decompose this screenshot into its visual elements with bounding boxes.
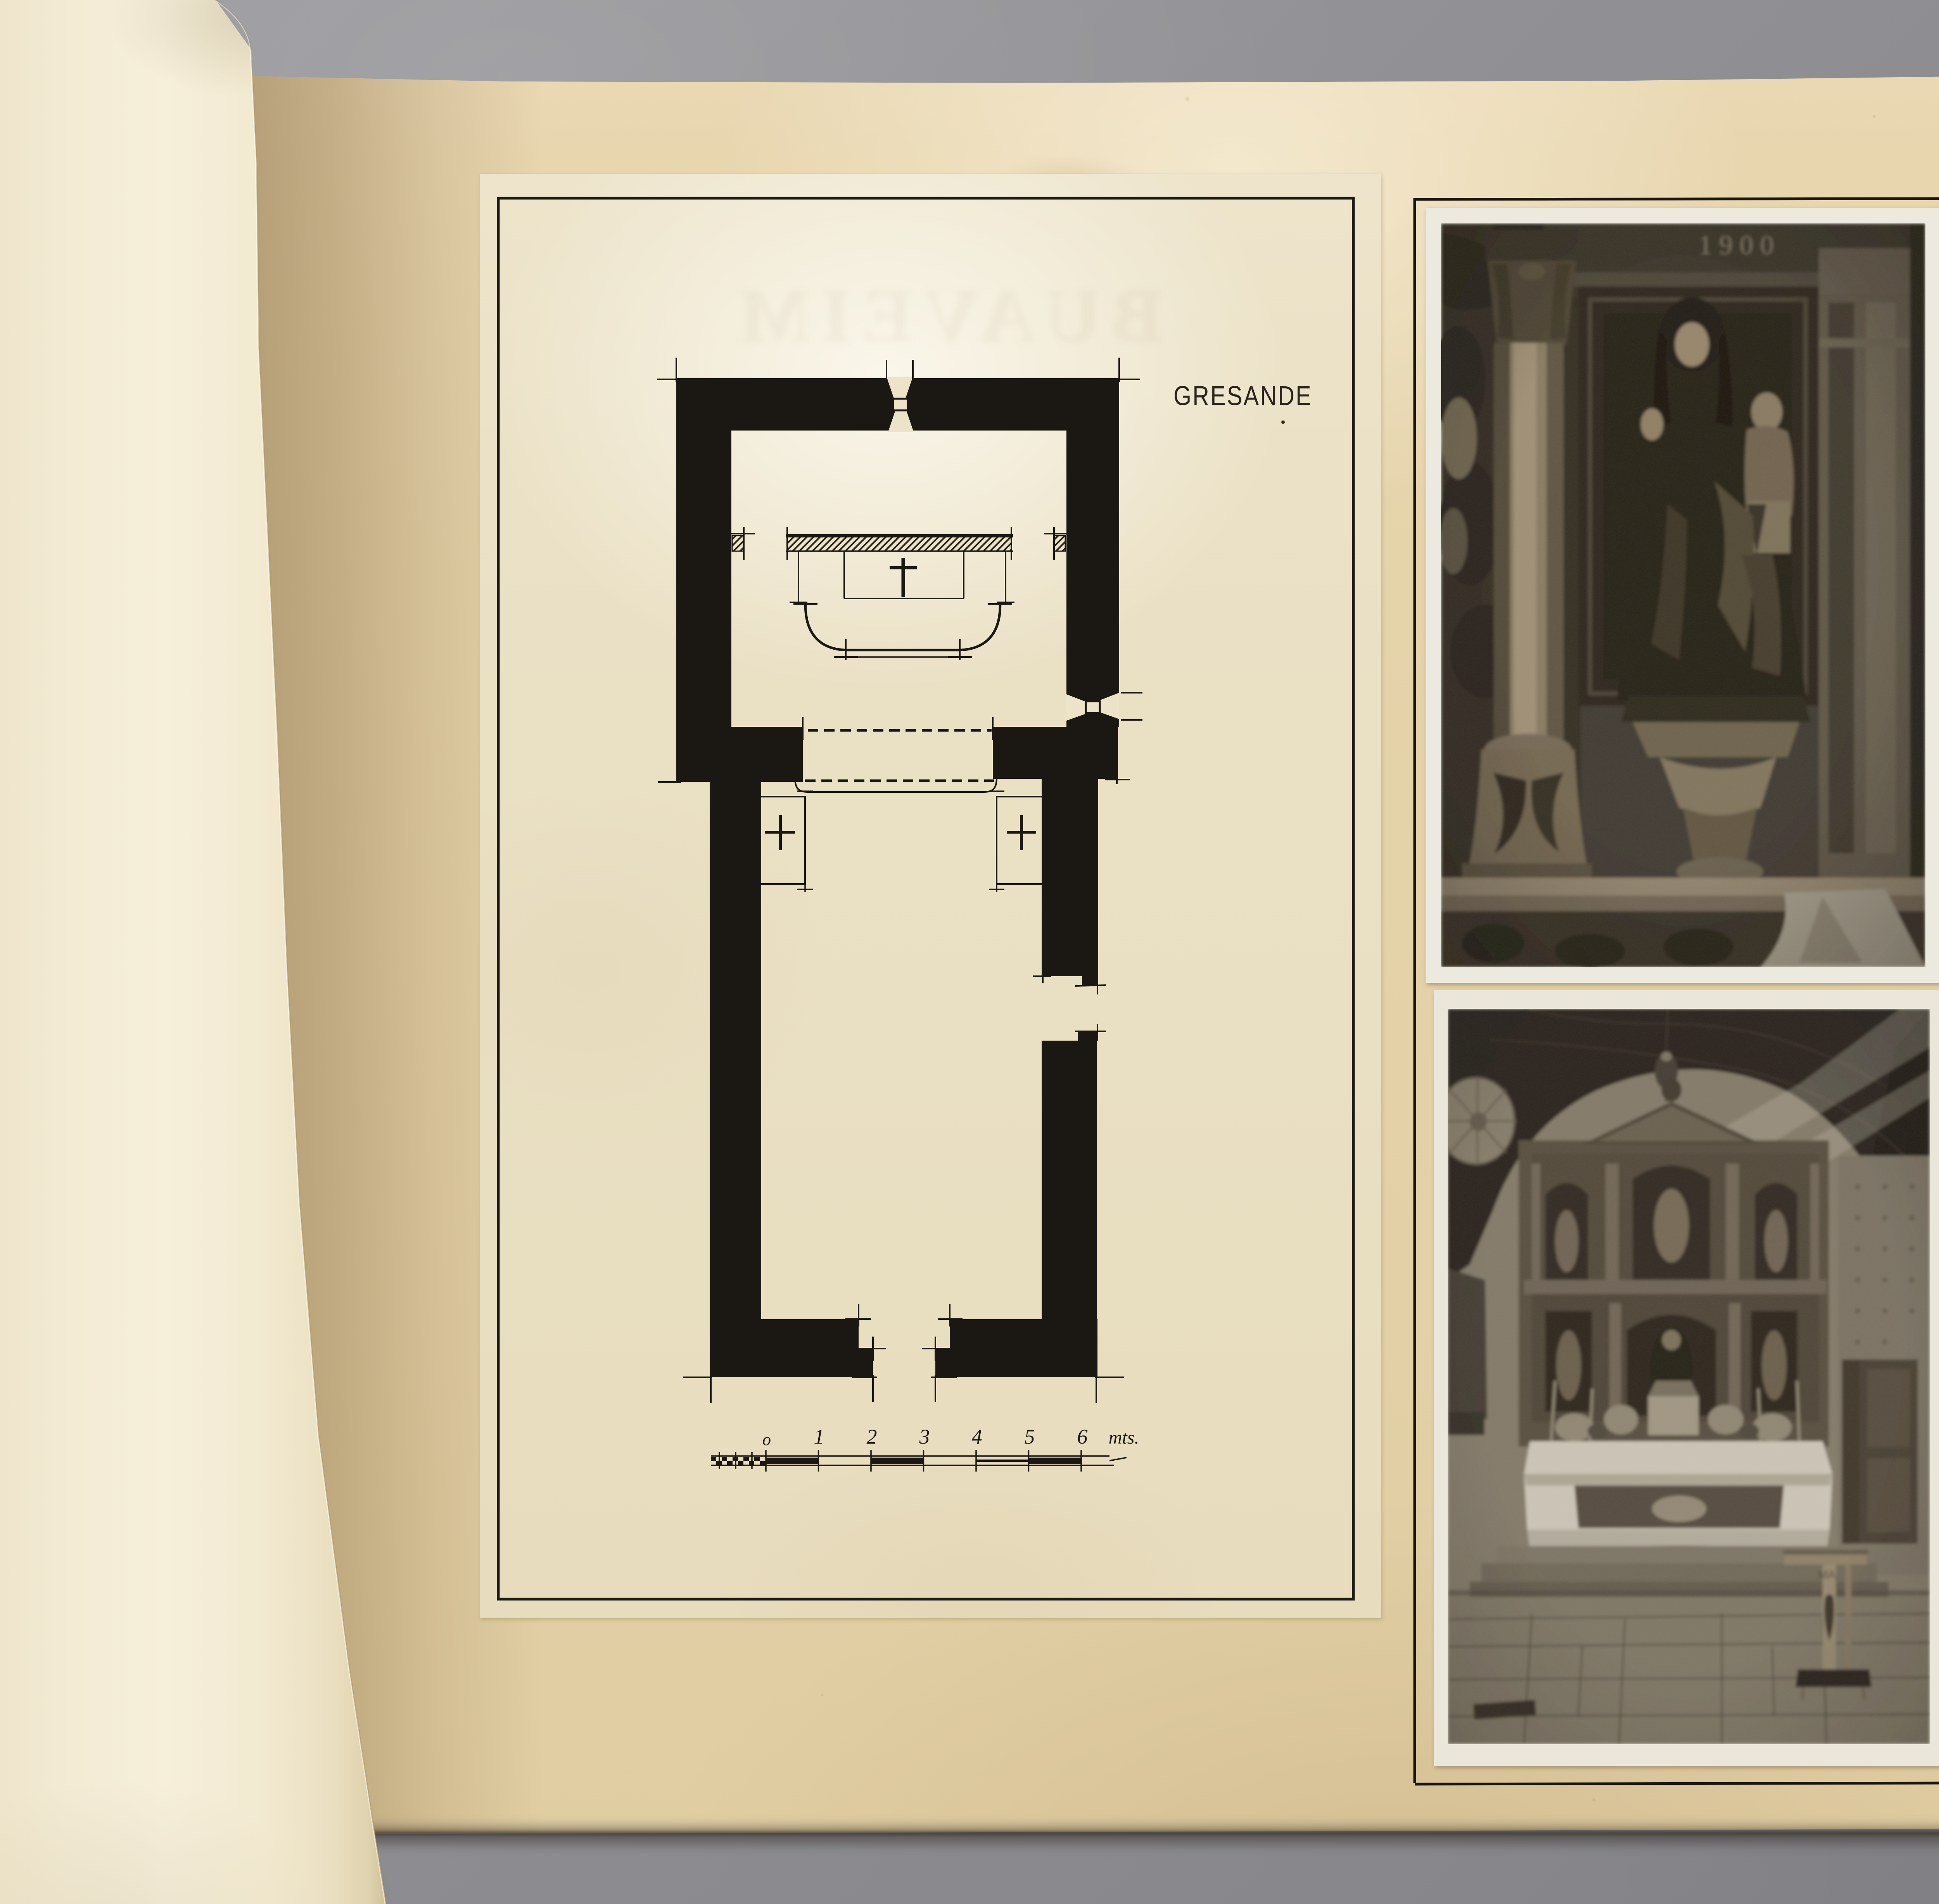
svg-text:3: 3 bbox=[919, 1425, 930, 1448]
svg-text:mts.: mts. bbox=[1109, 1427, 1139, 1448]
svg-text:1: 1 bbox=[814, 1425, 824, 1448]
svg-text:4: 4 bbox=[972, 1425, 982, 1448]
svg-text:2: 2 bbox=[867, 1425, 877, 1448]
svg-text:o: o bbox=[762, 1430, 771, 1449]
svg-text:6: 6 bbox=[1077, 1425, 1088, 1448]
svg-text:5: 5 bbox=[1025, 1425, 1035, 1448]
